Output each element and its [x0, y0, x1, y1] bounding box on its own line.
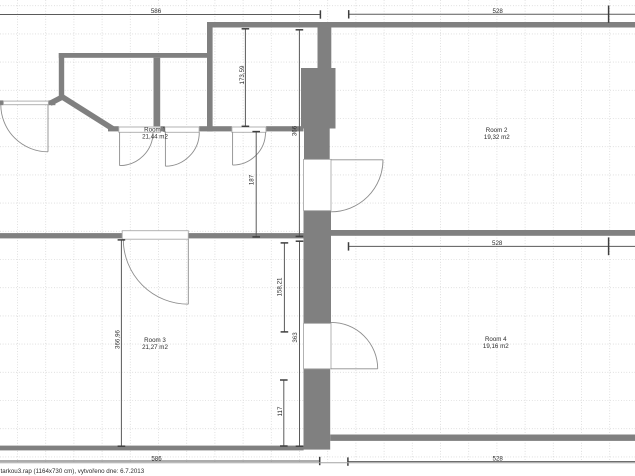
svg-text:173,59: 173,59	[239, 65, 246, 84]
svg-text:tarkou3.rap (1164x730 cm), vyt: tarkou3.rap (1164x730 cm), vytvořeno dne…	[1, 468, 145, 475]
svg-text:158,21: 158,21	[277, 277, 284, 296]
svg-text:363: 363	[292, 332, 299, 343]
svg-text:586: 586	[151, 456, 162, 463]
svg-text:117: 117	[277, 406, 284, 416]
svg-text:Room 3: Room 3	[144, 337, 166, 344]
svg-text:528: 528	[492, 240, 503, 247]
svg-text:21,44 m2: 21,44 m2	[142, 133, 168, 140]
svg-text:528: 528	[493, 8, 504, 15]
svg-text:366: 366	[292, 125, 299, 136]
svg-text:19,32 m2: 19,32 m2	[484, 134, 510, 141]
svg-text:187: 187	[249, 174, 256, 185]
svg-text:19,16 m2: 19,16 m2	[483, 343, 509, 350]
svg-text:528: 528	[493, 456, 504, 463]
svg-text:21,27 m2: 21,27 m2	[142, 344, 168, 351]
svg-text:586: 586	[151, 8, 162, 15]
svg-text:Room 4: Room 4	[485, 336, 507, 343]
svg-text:Room 2: Room 2	[486, 127, 508, 134]
svg-text:366,96: 366,96	[115, 329, 122, 348]
